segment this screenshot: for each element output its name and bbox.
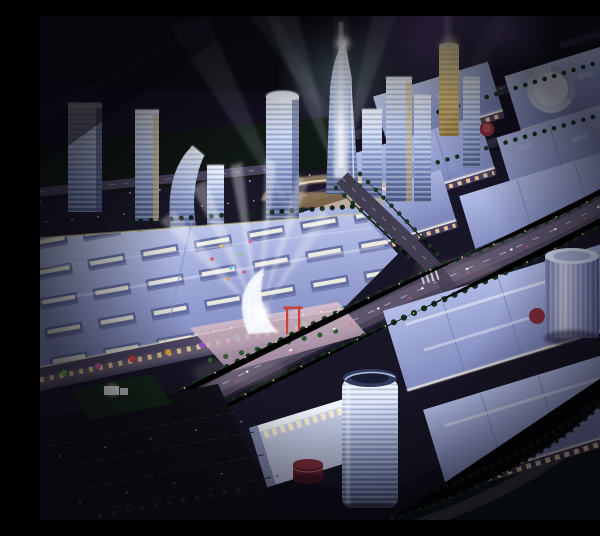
night-aerial-rendering	[40, 16, 600, 520]
rendering-canvas	[40, 16, 600, 520]
